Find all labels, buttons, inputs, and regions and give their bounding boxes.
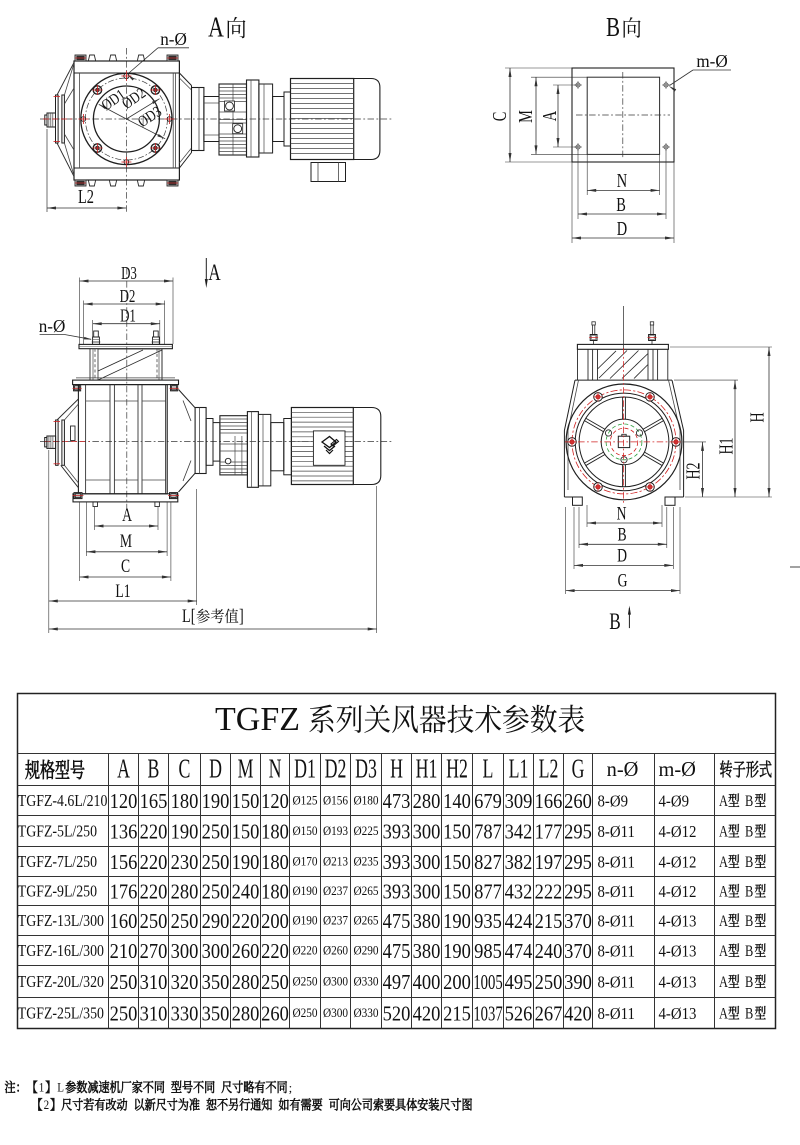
svg-text:475: 475: [383, 940, 411, 963]
svg-text:A: A: [208, 13, 224, 43]
svg-text:380: 380: [413, 940, 441, 963]
svg-text:165: 165: [140, 790, 168, 813]
svg-text:A: A: [719, 943, 729, 961]
svg-text:L2: L2: [539, 754, 559, 784]
svg-text:ØD2: ØD2: [119, 85, 149, 113]
svg-text:310: 310: [140, 1003, 168, 1026]
svg-text:L1: L1: [115, 580, 130, 602]
svg-text:Ø220: Ø220: [292, 943, 317, 958]
svg-text:Ø170: Ø170: [292, 854, 317, 869]
svg-text:300: 300: [413, 821, 441, 844]
svg-text:250: 250: [140, 910, 168, 933]
svg-text:495: 495: [505, 971, 533, 994]
svg-text:150: 150: [443, 851, 471, 874]
svg-text:200: 200: [443, 971, 471, 994]
svg-text:D: D: [617, 544, 627, 566]
svg-text:877: 877: [474, 881, 502, 904]
svg-text:A: A: [538, 110, 561, 121]
svg-text:TGFZ-5L/250: TGFZ-5L/250: [18, 822, 98, 840]
svg-text:250: 250: [110, 971, 138, 994]
svg-text:8-Ø11: 8-Ø11: [598, 974, 635, 992]
svg-text:B: B: [617, 523, 626, 545]
svg-text:220: 220: [232, 910, 260, 933]
svg-text:L[: L[: [182, 605, 195, 626]
svg-text:180: 180: [261, 851, 289, 874]
svg-text:M: M: [120, 530, 132, 552]
svg-text:1037: 1037: [473, 1002, 502, 1025]
svg-text:Ø125: Ø125: [292, 793, 317, 808]
svg-text:A: A: [719, 883, 729, 901]
svg-text:B: B: [745, 823, 753, 841]
svg-text:A: A: [719, 854, 729, 872]
svg-text:Ø235: Ø235: [353, 854, 378, 869]
svg-text:B: B: [745, 883, 753, 901]
svg-text:1: 1: [39, 1080, 45, 1095]
svg-text:150: 150: [443, 821, 471, 844]
svg-text:4-Ø13: 4-Ø13: [659, 943, 697, 961]
svg-text:270: 270: [140, 940, 168, 963]
svg-text:Ø265: Ø265: [353, 913, 378, 928]
svg-text:250: 250: [202, 851, 230, 874]
svg-text:;: ;: [289, 1080, 293, 1095]
svg-text:D: D: [209, 754, 222, 784]
svg-text:n-Ø: n-Ø: [607, 757, 639, 782]
svg-text:300: 300: [413, 881, 441, 904]
svg-text:Ø250: Ø250: [292, 974, 317, 989]
svg-text:230: 230: [171, 851, 199, 874]
svg-text:393: 393: [383, 851, 411, 874]
svg-text:210: 210: [110, 940, 138, 963]
svg-text:Ø237: Ø237: [323, 913, 348, 928]
svg-text:424: 424: [505, 910, 533, 933]
svg-text:260: 260: [564, 790, 592, 813]
svg-text:8-Ø11: 8-Ø11: [598, 1005, 635, 1023]
svg-text:D3: D3: [121, 264, 137, 284]
svg-text:260: 260: [261, 1003, 289, 1026]
svg-text:180: 180: [261, 881, 289, 904]
svg-text:120: 120: [110, 790, 138, 813]
svg-text:N: N: [269, 754, 282, 784]
svg-text:150: 150: [443, 881, 471, 904]
svg-text:197: 197: [535, 851, 563, 874]
svg-text:D1: D1: [120, 307, 136, 327]
svg-text:150: 150: [232, 790, 260, 813]
svg-text:TGFZ: TGFZ: [215, 701, 300, 738]
svg-text:ØD3: ØD3: [135, 103, 165, 131]
svg-text:370: 370: [564, 910, 592, 933]
svg-text:295: 295: [564, 881, 592, 904]
svg-text:n-Ø: n-Ø: [160, 29, 187, 50]
svg-text:250: 250: [261, 971, 289, 994]
svg-text:497: 497: [383, 971, 411, 994]
svg-text:A: A: [719, 913, 729, 931]
svg-text:A: A: [719, 793, 729, 811]
svg-text:Ø237: Ø237: [323, 884, 348, 899]
svg-text:TGFZ-7L/250: TGFZ-7L/250: [18, 853, 98, 871]
svg-text:L2: L2: [78, 185, 94, 208]
svg-text:220: 220: [261, 940, 289, 963]
svg-text:A: A: [719, 974, 729, 992]
svg-text:D2: D2: [325, 754, 347, 784]
svg-text:B: B: [745, 1005, 753, 1023]
svg-text:H2: H2: [446, 754, 468, 784]
svg-text:D2: D2: [120, 287, 136, 307]
svg-text:Ø150: Ø150: [292, 824, 317, 839]
svg-text:H: H: [390, 754, 403, 784]
svg-text:679: 679: [474, 790, 502, 813]
svg-text:280: 280: [232, 971, 260, 994]
svg-text:M: M: [238, 754, 254, 784]
svg-text:Ø300: Ø300: [323, 1006, 348, 1021]
svg-text:190: 190: [171, 821, 199, 844]
svg-text:B: B: [745, 913, 753, 931]
svg-text:4-Ø12: 4-Ø12: [659, 854, 697, 872]
svg-text:260: 260: [232, 940, 260, 963]
svg-text:m-Ø: m-Ø: [696, 51, 727, 72]
svg-text:2: 2: [44, 1097, 50, 1112]
svg-text:473: 473: [383, 790, 411, 813]
svg-text:985: 985: [474, 940, 502, 963]
svg-text:309: 309: [505, 790, 533, 813]
svg-text:Ø290: Ø290: [353, 943, 378, 958]
svg-text:B: B: [616, 193, 626, 216]
svg-text:400: 400: [413, 971, 441, 994]
svg-text:475: 475: [383, 910, 411, 933]
svg-text:8-Ø11: 8-Ø11: [598, 883, 635, 901]
svg-text:H: H: [746, 412, 768, 422]
svg-text:222: 222: [535, 881, 563, 904]
svg-text:B: B: [745, 974, 753, 992]
svg-text:C: C: [121, 555, 130, 577]
svg-text:M: M: [514, 110, 537, 123]
svg-text:190: 190: [443, 910, 471, 933]
svg-text:L: L: [57, 1080, 64, 1095]
svg-text:300: 300: [202, 940, 230, 963]
svg-text:B: B: [609, 610, 621, 635]
svg-text:TGFZ-16L/300: TGFZ-16L/300: [18, 942, 104, 960]
svg-text:180: 180: [171, 790, 199, 813]
svg-text:A: A: [122, 504, 132, 526]
svg-text:393: 393: [383, 881, 411, 904]
svg-text:156: 156: [110, 851, 138, 874]
svg-text:Ø265: Ø265: [353, 884, 378, 899]
svg-text:140: 140: [443, 790, 471, 813]
svg-text:280: 280: [232, 1003, 260, 1026]
svg-text:Ø330: Ø330: [353, 974, 378, 989]
svg-text:B: B: [148, 754, 160, 784]
svg-text:300: 300: [171, 940, 199, 963]
svg-text:B: B: [606, 13, 620, 43]
svg-text:Ø156: Ø156: [323, 793, 348, 808]
svg-text:370: 370: [564, 940, 592, 963]
svg-text:320: 320: [171, 971, 199, 994]
svg-text:H2: H2: [682, 462, 704, 479]
svg-text:215: 215: [443, 1003, 471, 1026]
svg-text:330: 330: [171, 1003, 199, 1026]
svg-text:180: 180: [261, 821, 289, 844]
svg-text:935: 935: [474, 910, 502, 933]
svg-text:380: 380: [413, 910, 441, 933]
svg-text:4-Ø12: 4-Ø12: [659, 823, 697, 841]
svg-text:166: 166: [535, 790, 563, 813]
svg-text:432: 432: [505, 881, 533, 904]
svg-text:190: 190: [202, 790, 230, 813]
svg-text:4-Ø9: 4-Ø9: [659, 793, 690, 811]
svg-text:Ø193: Ø193: [323, 824, 348, 839]
svg-text:TGFZ-9L/250: TGFZ-9L/250: [18, 882, 98, 900]
svg-text:4-Ø13: 4-Ø13: [659, 974, 697, 992]
svg-text:n-Ø: n-Ø: [39, 316, 66, 337]
svg-text:Ø180: Ø180: [353, 793, 378, 808]
svg-text:393: 393: [383, 821, 411, 844]
svg-text:B: B: [745, 793, 753, 811]
svg-text:A: A: [208, 261, 221, 286]
svg-text:4-Ø12: 4-Ø12: [659, 883, 697, 901]
svg-text:120: 120: [261, 790, 289, 813]
svg-text:TGFZ-13L/300: TGFZ-13L/300: [18, 912, 104, 930]
svg-text:220: 220: [140, 821, 168, 844]
svg-text:B: B: [745, 943, 753, 961]
svg-text:G: G: [618, 569, 628, 591]
svg-text:N: N: [617, 169, 628, 192]
svg-text:B: B: [745, 854, 753, 872]
svg-text:250: 250: [171, 910, 199, 933]
svg-text:]: ]: [239, 605, 244, 626]
svg-text:L1: L1: [509, 754, 529, 784]
svg-text:A: A: [117, 754, 130, 784]
svg-text:Ø190: Ø190: [292, 884, 317, 899]
svg-text:177: 177: [535, 821, 563, 844]
svg-text:TGFZ-4.6L/210: TGFZ-4.6L/210: [18, 792, 108, 810]
svg-text:526: 526: [505, 1003, 533, 1026]
svg-text:220: 220: [140, 881, 168, 904]
svg-text:240: 240: [535, 940, 563, 963]
svg-text:C: C: [488, 112, 511, 122]
svg-text:300: 300: [413, 851, 441, 874]
svg-text:240: 240: [232, 881, 260, 904]
svg-text:8-Ø11: 8-Ø11: [598, 854, 635, 872]
svg-text:Ø225: Ø225: [353, 824, 378, 839]
svg-text:136: 136: [110, 821, 138, 844]
svg-text:1005: 1005: [473, 971, 502, 994]
svg-text:290: 290: [202, 910, 230, 933]
svg-text:250: 250: [110, 1003, 138, 1026]
svg-text:827: 827: [474, 851, 502, 874]
svg-text:350: 350: [202, 971, 230, 994]
svg-text:390: 390: [564, 971, 592, 994]
svg-text:8-Ø11: 8-Ø11: [598, 943, 635, 961]
svg-text:C: C: [179, 754, 191, 784]
svg-text:267: 267: [535, 1003, 563, 1026]
svg-text:Ø250: Ø250: [292, 1006, 317, 1021]
svg-text:TGFZ-20L/320: TGFZ-20L/320: [18, 973, 104, 991]
svg-text:D1: D1: [294, 754, 316, 784]
svg-text:Ø260: Ø260: [323, 943, 348, 958]
svg-text:8-Ø11: 8-Ø11: [598, 913, 635, 931]
svg-text:H1: H1: [416, 754, 438, 784]
svg-text:250: 250: [202, 881, 230, 904]
svg-text:200: 200: [261, 910, 289, 933]
svg-text:4-Ø13: 4-Ø13: [659, 1005, 697, 1023]
svg-text:342: 342: [505, 821, 533, 844]
svg-text:N: N: [617, 502, 627, 524]
svg-text:190: 190: [443, 940, 471, 963]
svg-text:8-Ø9: 8-Ø9: [598, 793, 629, 811]
svg-text:TGFZ-25L/350: TGFZ-25L/350: [18, 1004, 104, 1022]
svg-text:L: L: [483, 754, 494, 784]
svg-text:m-Ø: m-Ø: [659, 757, 696, 782]
svg-text:215: 215: [535, 910, 563, 933]
svg-text:8-Ø11: 8-Ø11: [598, 823, 635, 841]
svg-text:G: G: [572, 754, 585, 784]
svg-text:250: 250: [202, 821, 230, 844]
svg-text:295: 295: [564, 851, 592, 874]
svg-text:787: 787: [474, 821, 502, 844]
svg-text:4-Ø13: 4-Ø13: [659, 913, 697, 931]
svg-text:Ø300: Ø300: [323, 974, 348, 989]
svg-text:160: 160: [110, 910, 138, 933]
svg-text:Ø330: Ø330: [353, 1006, 378, 1021]
svg-text:420: 420: [564, 1003, 592, 1026]
svg-text:474: 474: [505, 940, 533, 963]
svg-text:382: 382: [505, 851, 533, 874]
svg-text:H1: H1: [715, 437, 737, 454]
svg-text:D: D: [617, 217, 627, 240]
svg-text:150: 150: [232, 821, 260, 844]
svg-text:220: 220: [140, 851, 168, 874]
svg-text:D3: D3: [355, 754, 377, 784]
svg-text:420: 420: [413, 1003, 441, 1026]
svg-text:250: 250: [535, 971, 563, 994]
svg-text:280: 280: [413, 790, 441, 813]
svg-text:176: 176: [110, 881, 138, 904]
svg-text:310: 310: [140, 971, 168, 994]
svg-text:520: 520: [383, 1003, 411, 1026]
svg-text:A: A: [719, 1005, 729, 1023]
svg-text:190: 190: [232, 851, 260, 874]
svg-text:A: A: [719, 823, 729, 841]
svg-text:Ø213: Ø213: [323, 854, 348, 869]
svg-text:350: 350: [202, 1003, 230, 1026]
svg-text:295: 295: [564, 821, 592, 844]
svg-text:280: 280: [171, 881, 199, 904]
svg-text:Ø190: Ø190: [292, 913, 317, 928]
